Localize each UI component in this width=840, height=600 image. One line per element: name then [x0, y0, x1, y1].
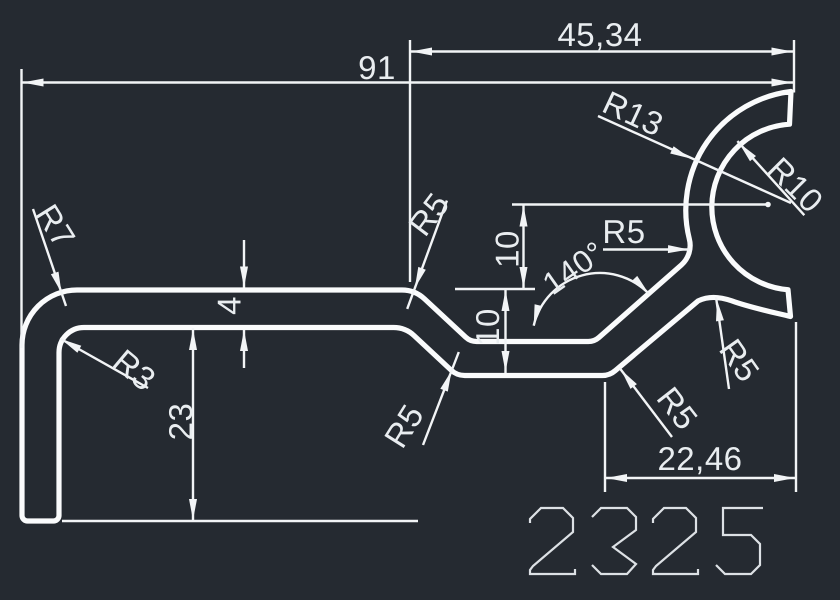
svg-text:10: 10	[469, 308, 506, 346]
svg-text:4: 4	[211, 296, 248, 315]
svg-text:R5: R5	[602, 213, 645, 250]
svg-text:45,34: 45,34	[557, 16, 642, 53]
svg-text:91: 91	[358, 49, 396, 86]
svg-text:10: 10	[489, 230, 526, 268]
svg-text:23: 23	[162, 403, 199, 441]
svg-text:22,46: 22,46	[657, 440, 742, 477]
